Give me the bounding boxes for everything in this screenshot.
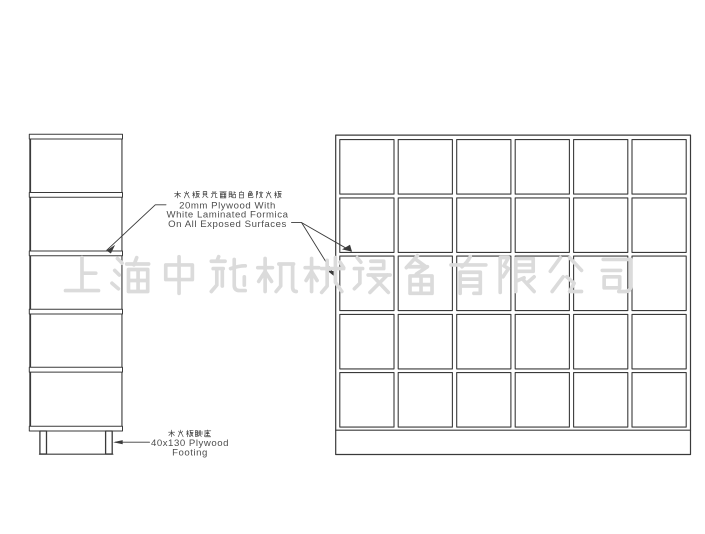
svg-text:On All Exposed Surfaces: On All Exposed Surfaces bbox=[168, 219, 287, 230]
svg-text:Footing: Footing bbox=[172, 448, 208, 459]
